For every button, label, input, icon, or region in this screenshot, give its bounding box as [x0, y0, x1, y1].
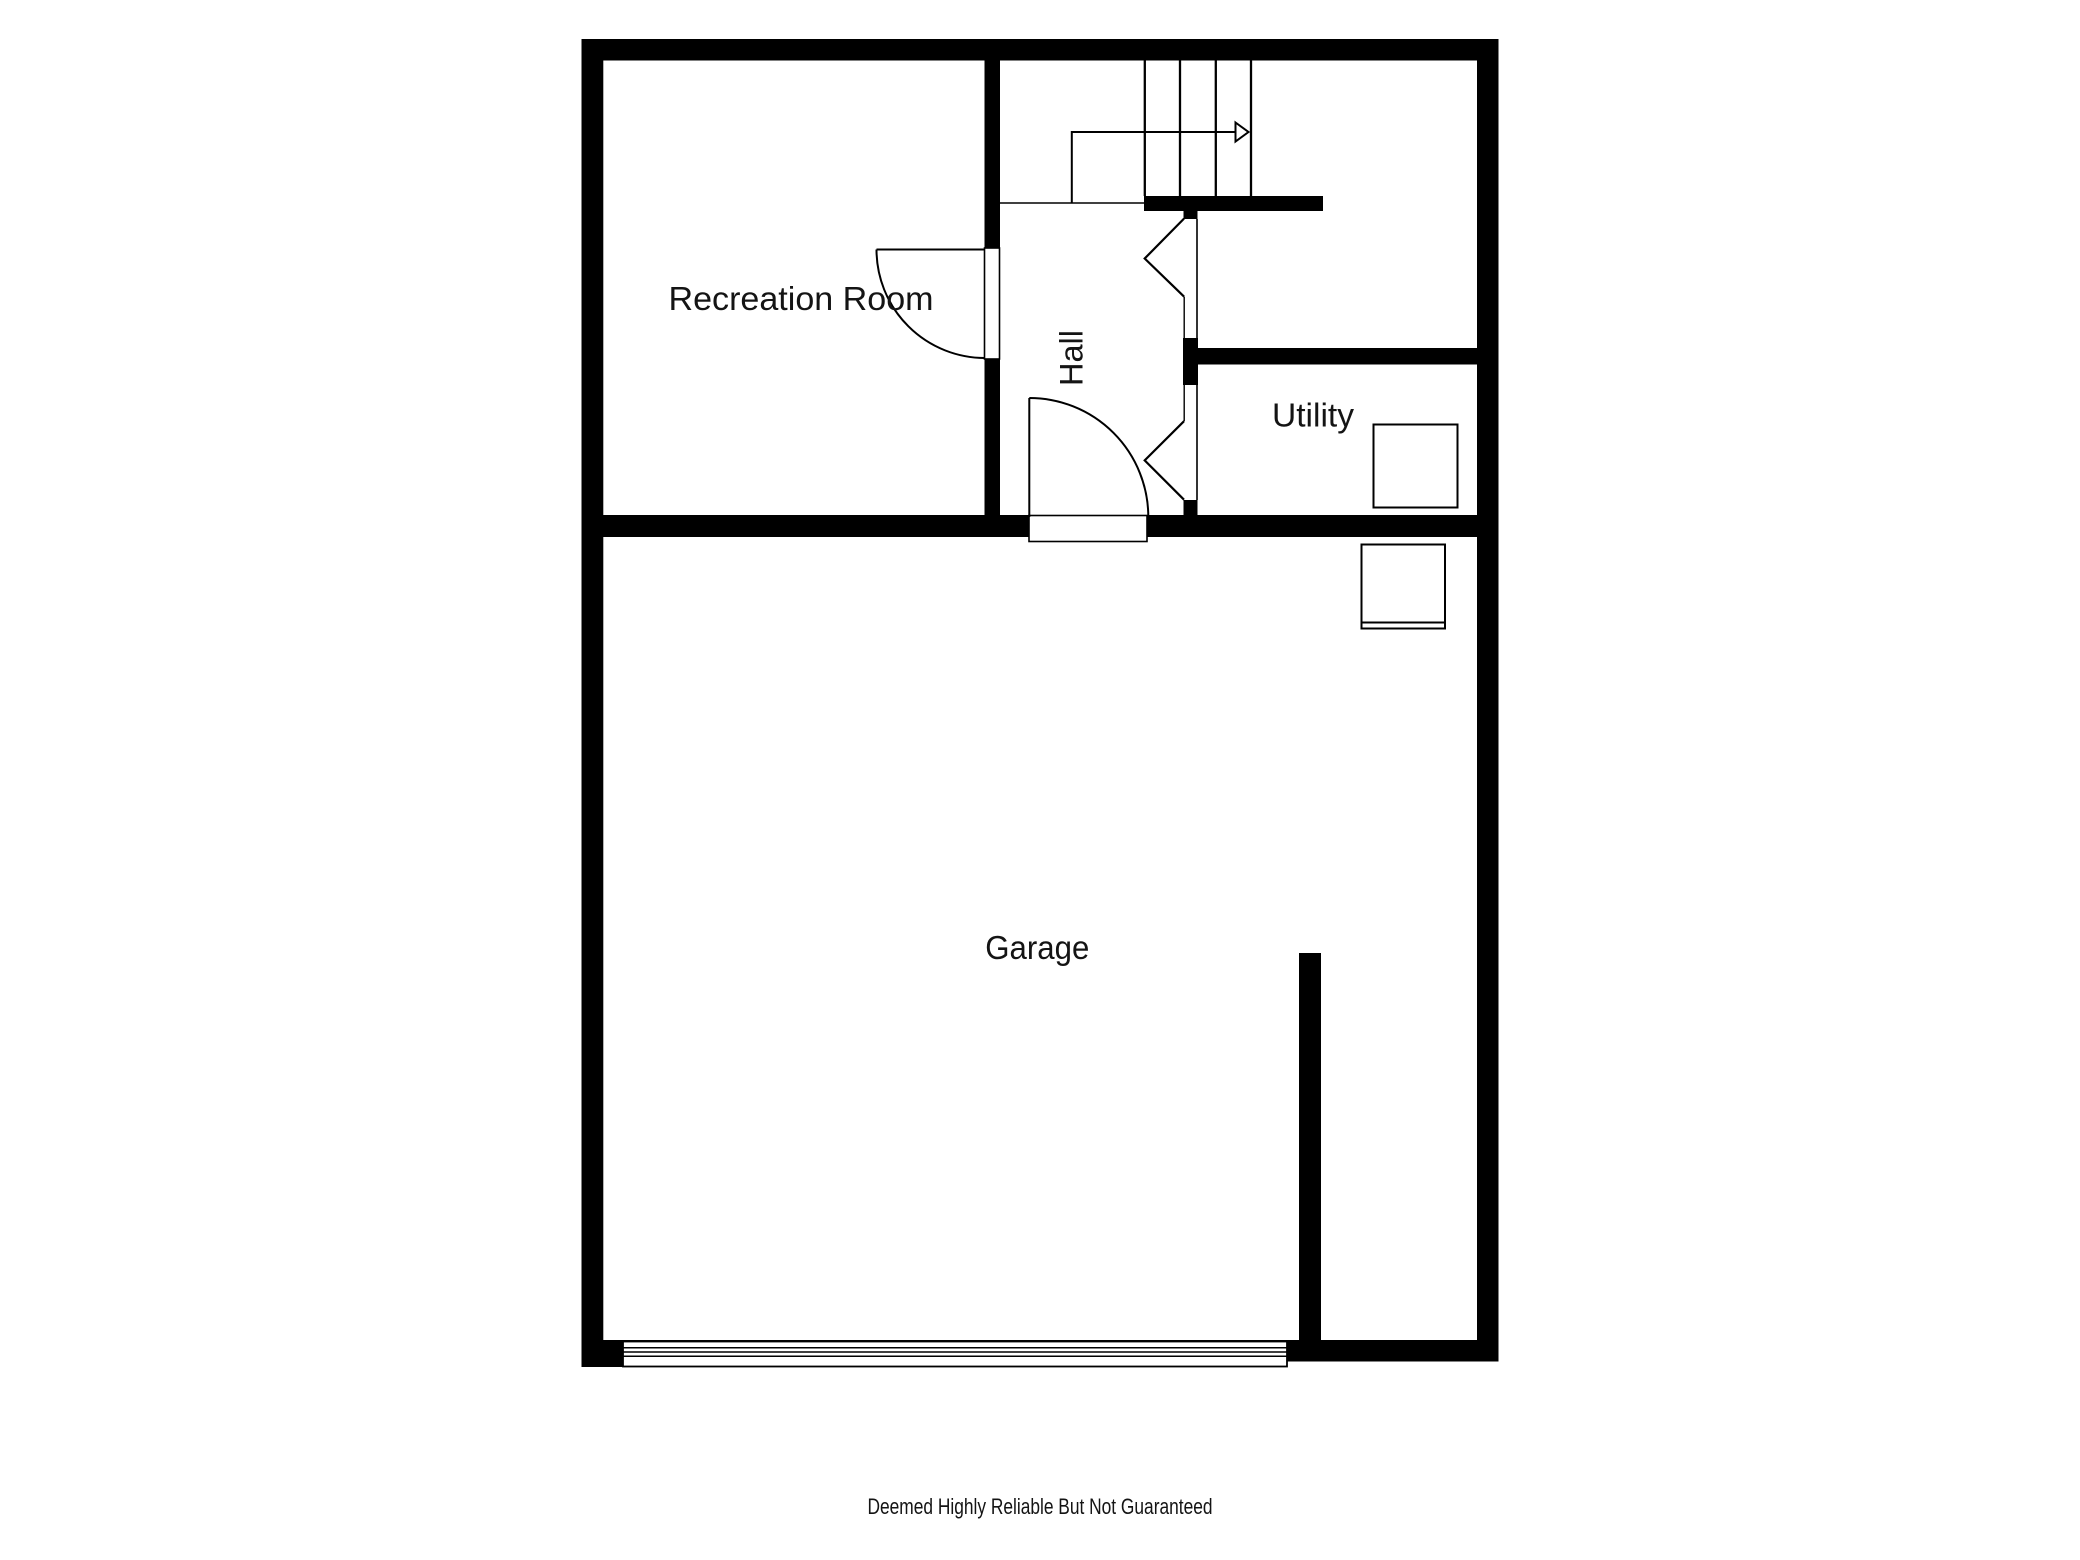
svg-text:Hall: Hall: [1054, 330, 1090, 386]
svg-text:Deemed Highly Reliable But Not: Deemed Highly Reliable But Not Guarantee…: [868, 1494, 1213, 1519]
svg-text:Recreation Room: Recreation Room: [669, 280, 934, 317]
svg-text:Utility: Utility: [1272, 397, 1354, 434]
svg-text:Garage: Garage: [985, 929, 1089, 966]
